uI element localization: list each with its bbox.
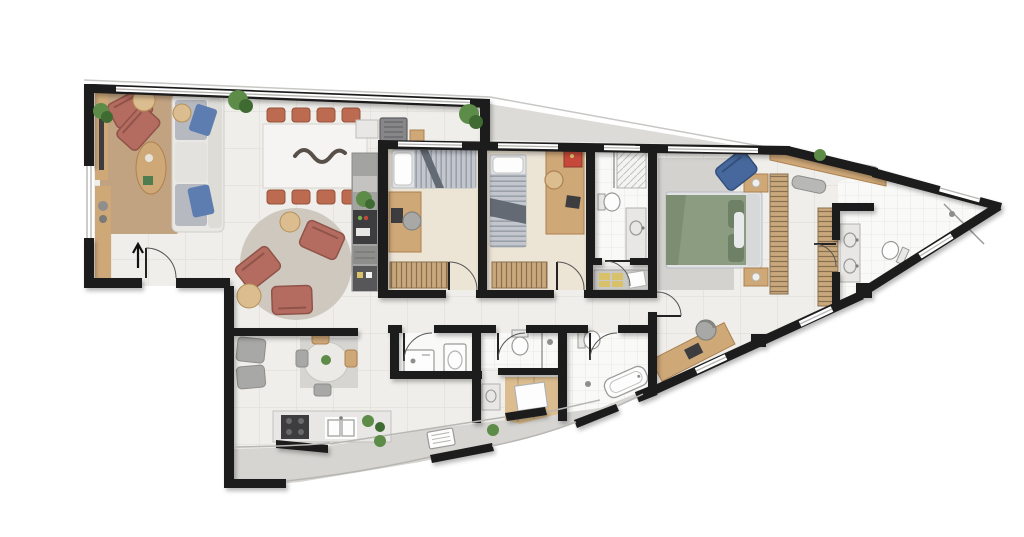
faucet xyxy=(855,264,858,267)
tall-cabinet-column xyxy=(352,153,378,291)
single-bed xyxy=(490,155,526,247)
utility-sink xyxy=(444,344,466,372)
low-sideboard xyxy=(95,186,111,282)
wall-corridor-top-b xyxy=(476,290,554,298)
tv-screen xyxy=(99,118,104,170)
wall-w4 xyxy=(648,149,657,290)
window-left xyxy=(84,166,94,238)
headboard xyxy=(746,194,760,266)
towel-cabinet xyxy=(594,270,650,290)
wall-niche-side xyxy=(586,262,593,290)
washing-machine xyxy=(404,350,434,372)
shower-head xyxy=(547,339,553,345)
shower xyxy=(617,150,646,188)
desk-chair xyxy=(545,171,563,189)
drawers xyxy=(353,246,377,264)
desk-chair xyxy=(403,212,421,230)
nook-chair xyxy=(345,350,357,367)
accent-pillow xyxy=(734,212,744,248)
washer-dial xyxy=(411,359,416,364)
decor-bowl xyxy=(99,215,107,223)
wall-w1 xyxy=(378,149,388,298)
wardrobe xyxy=(390,262,448,288)
vanity xyxy=(626,208,646,260)
double-bed xyxy=(666,192,762,268)
wall-bottom-left-a xyxy=(84,278,142,288)
wall-corridor-bot-a xyxy=(388,325,402,333)
desk-chair xyxy=(696,320,716,340)
wardrobe xyxy=(770,174,788,294)
wall-bath2-west xyxy=(472,325,481,423)
wall-corridor-bot-b xyxy=(434,325,496,333)
single-bed xyxy=(392,150,476,188)
microwave xyxy=(356,228,370,236)
oval-coffee-table xyxy=(136,142,166,194)
sofa-cushion xyxy=(175,142,207,182)
laptop xyxy=(391,208,403,223)
lamp xyxy=(752,273,760,281)
wall-master-west xyxy=(648,312,657,394)
nook-chair xyxy=(296,350,308,367)
wall-left-upper xyxy=(84,84,94,166)
closet-box xyxy=(514,382,547,411)
faucet xyxy=(641,226,644,229)
side-table xyxy=(173,104,191,122)
faucet xyxy=(339,416,343,420)
art-detail xyxy=(570,154,574,158)
wall-bath1-b xyxy=(630,258,654,265)
side-table xyxy=(280,212,300,232)
shower-head xyxy=(949,211,955,217)
decor xyxy=(145,154,153,162)
wall-w3 xyxy=(586,149,595,262)
wall-w2 xyxy=(478,149,487,290)
decor-bowl xyxy=(98,201,108,211)
wall-corridor-top-a xyxy=(388,290,446,298)
wall-laundry-south xyxy=(390,371,482,379)
cutting-board xyxy=(410,130,424,141)
bbq-grill xyxy=(380,118,407,142)
item xyxy=(366,272,372,278)
cooktop xyxy=(281,415,309,439)
plant-master xyxy=(814,149,826,161)
item xyxy=(357,272,363,278)
oven-tower xyxy=(353,210,377,244)
armchair xyxy=(236,337,266,364)
armchair xyxy=(236,365,266,389)
wardrobe xyxy=(492,262,547,288)
service-terrace xyxy=(427,428,456,449)
wall-corridor-bot-d xyxy=(618,325,652,333)
wall-bottom-left-b xyxy=(176,278,230,288)
jar xyxy=(358,216,362,220)
nook-chair xyxy=(314,384,331,396)
vanity xyxy=(482,384,500,410)
pillow xyxy=(394,153,412,185)
cabinet-shelf xyxy=(353,176,377,192)
side-table xyxy=(237,284,261,308)
wall-bath1-a xyxy=(592,258,602,265)
wall-corridor-top-c xyxy=(584,290,657,298)
faucet xyxy=(855,238,858,241)
wall-terrace-a xyxy=(224,479,286,488)
wall-masterbath-a xyxy=(832,203,840,240)
prep-counter xyxy=(356,120,378,138)
ac-condenser xyxy=(427,428,456,449)
floor-plan-drawing xyxy=(0,0,1024,537)
lamp xyxy=(752,179,760,187)
wall-kitchen-west xyxy=(224,286,234,482)
decor-green xyxy=(143,176,153,185)
plant-terrace-2 xyxy=(487,424,499,436)
wall-masterbath-b xyxy=(832,272,840,308)
laptop xyxy=(565,195,581,209)
wall-corridor-bot-c xyxy=(526,325,588,333)
shower-head xyxy=(585,381,591,387)
wall-nook xyxy=(228,328,358,336)
table-plant xyxy=(321,355,331,365)
lower-cabinet xyxy=(353,266,377,291)
plant-terrace-1 xyxy=(374,435,386,447)
jar xyxy=(364,216,368,220)
circle-chair-3 xyxy=(272,285,313,314)
floor-plan-stage xyxy=(0,0,1024,537)
toilet xyxy=(598,193,620,211)
wall-art xyxy=(564,151,582,167)
wall-bath2-partition xyxy=(498,368,560,375)
pillow xyxy=(493,157,523,173)
